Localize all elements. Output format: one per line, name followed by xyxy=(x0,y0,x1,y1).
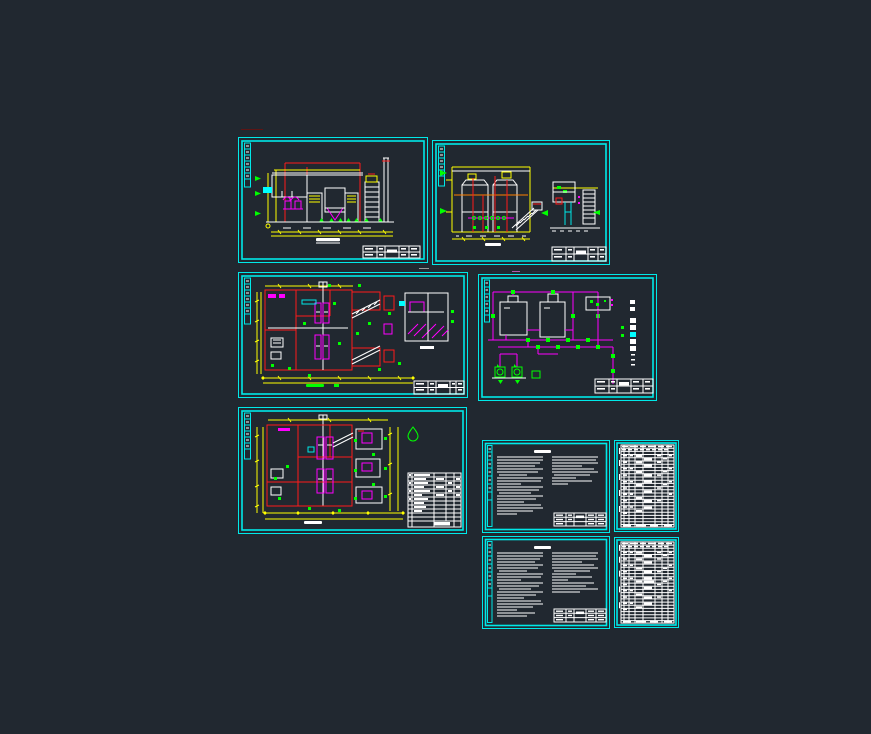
detail-title-blob xyxy=(420,346,434,349)
sheet-1-drawing xyxy=(238,137,428,263)
drawing-number-blob xyxy=(434,522,450,526)
sheet-table-2[interactable] xyxy=(614,537,679,628)
sheet-plan-2[interactable] xyxy=(238,407,467,534)
extra-notes-lines xyxy=(497,583,598,616)
sheet-7-drawing xyxy=(614,440,679,532)
elevation-linework xyxy=(255,158,394,243)
tank-elevation-linework xyxy=(440,167,548,246)
title-block xyxy=(414,381,464,394)
plan-linework xyxy=(255,282,415,387)
extra-table-blob xyxy=(644,581,654,584)
drawing-title-blob xyxy=(306,384,324,387)
binding-strip xyxy=(439,146,445,186)
sheet-5-drawing xyxy=(238,407,467,534)
plan-linework xyxy=(255,415,418,524)
sheet-elevation-a[interactable] xyxy=(238,137,428,263)
flow-diagram-linework xyxy=(488,290,636,384)
droplet-symbol xyxy=(408,427,418,441)
drawing-title-blob xyxy=(485,243,501,246)
binding-strip xyxy=(245,278,251,324)
stray-linework xyxy=(241,129,263,130)
sheet-6-drawing xyxy=(482,440,610,533)
title-block xyxy=(363,246,420,258)
stray-linework xyxy=(419,268,429,269)
drawing-title-blob xyxy=(304,521,322,524)
cad-model-space-canvas[interactable] xyxy=(0,0,871,734)
sheet-table-1[interactable] xyxy=(614,440,679,532)
title-block xyxy=(552,247,606,261)
sheet-elevation-b[interactable] xyxy=(432,140,610,265)
vertical-caption-glyphs xyxy=(630,300,636,366)
binding-strip xyxy=(245,143,251,187)
material-table xyxy=(408,473,461,527)
sheet-4-drawing xyxy=(478,274,657,401)
sheet-process-flow[interactable] xyxy=(478,274,657,401)
drawing-title-blob xyxy=(316,238,340,241)
sheet-3-drawing xyxy=(238,272,468,398)
sheet-plan-1[interactable] xyxy=(238,272,468,398)
side-detail-linework xyxy=(550,182,600,231)
sheet-9-drawing xyxy=(614,537,679,628)
sheet-8-drawing xyxy=(482,536,610,629)
stray-linework xyxy=(512,271,520,272)
title-block xyxy=(595,379,653,393)
binding-strip xyxy=(245,413,251,459)
sheet-notes-2[interactable] xyxy=(482,536,610,629)
binding-strip xyxy=(485,280,490,322)
detail-linework xyxy=(399,293,454,349)
sheet-notes-1[interactable] xyxy=(482,440,610,533)
pump-symbols xyxy=(492,364,540,384)
sheet-2-drawing xyxy=(432,140,610,265)
